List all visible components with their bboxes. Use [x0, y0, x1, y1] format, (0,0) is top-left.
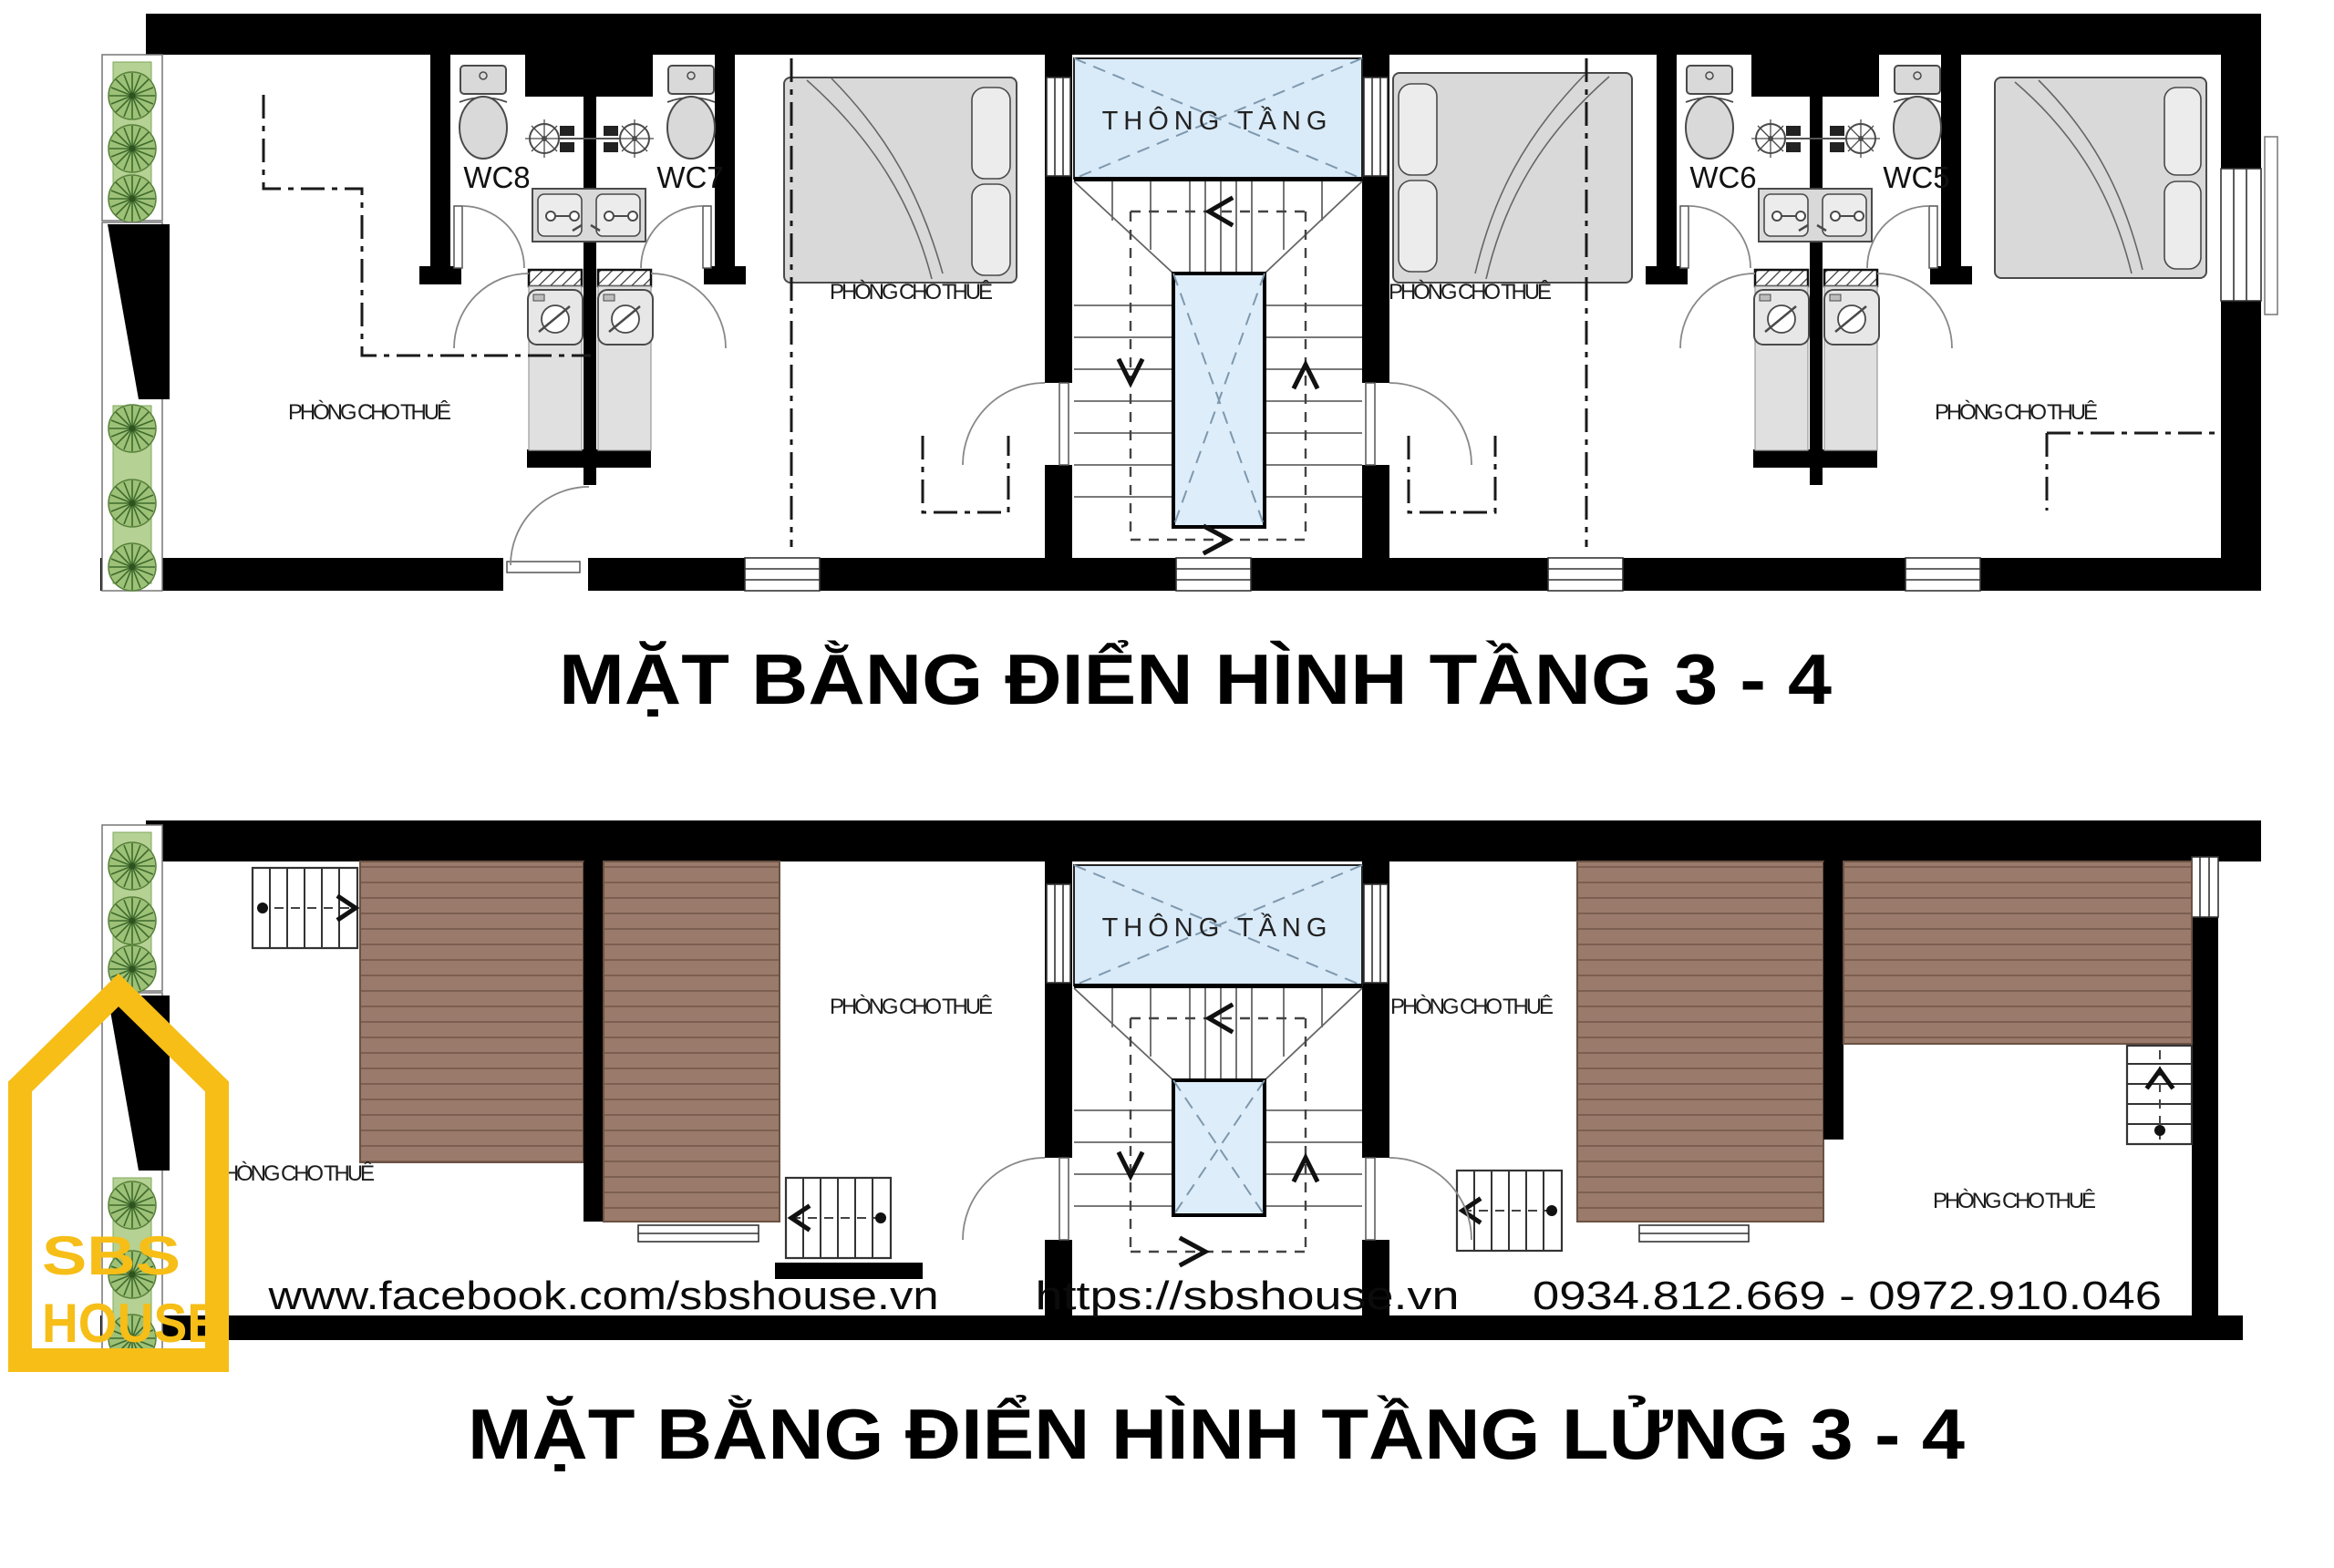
wc6-label: WC6 — [1689, 160, 1756, 194]
wood-deck — [604, 861, 780, 1222]
website-url: https://sbshouse.vn — [1036, 1274, 1460, 1318]
top-exterior-wall — [146, 820, 2261, 861]
wc8-label: WC8 — [463, 160, 530, 194]
right-wall-window — [2192, 857, 2218, 917]
plan1-title: MẶT BẰNG ĐIỂN HÌNH TẦNG 3 - 4 — [559, 639, 1832, 719]
top-exterior-wall — [146, 14, 2261, 55]
room-label: PHÒNG CHO THUÊ — [1933, 1189, 2097, 1213]
floor-plan-drawing: WC8 WC7 WC6 WC5 — [0, 0, 2334, 1568]
mezzanine-projection-line — [2047, 433, 2215, 511]
floor-plan-sheet: WC8 WC7 WC6 WC5 — [0, 0, 2334, 1568]
plan2-title: MẶT BẰNG ĐIỂN HÌNH TẦNG LỬNG 3 - 4 — [468, 1394, 1965, 1474]
bed-icon — [784, 77, 1017, 283]
plant-icon — [108, 405, 156, 452]
plant-icon — [108, 125, 156, 172]
bed-icon — [1393, 73, 1632, 283]
bed-icon — [1995, 77, 2206, 278]
balcony-rail — [2265, 137, 2277, 315]
stair-hall: THÔNG TẦNG — [963, 861, 1472, 1315]
room-label: PHÒNG CHO THUÊ — [1389, 280, 1553, 304]
phone-numbers: 0934.812.669 - 0972.910.046 — [1533, 1274, 2162, 1318]
plant-icon — [108, 72, 156, 119]
wood-deck — [1843, 861, 2192, 1044]
plant-icon — [108, 1181, 156, 1229]
wc7-label: WC7 — [656, 160, 723, 194]
wood-deck — [1577, 861, 1823, 1222]
plan-floor-3-4: WC8 WC7 WC6 WC5 — [100, 14, 2277, 591]
plant-icon — [108, 543, 156, 591]
plant-icon — [108, 842, 156, 890]
room-label: PHÒNG CHO THUÊ — [830, 995, 994, 1019]
logo-text-line2: HOUSE — [42, 1293, 221, 1354]
plant-icon — [108, 480, 156, 527]
right-wall-window — [2221, 169, 2261, 301]
logo-text-line1: SBS — [42, 1225, 181, 1286]
room-label: PHÒNG CHO THUÊ — [212, 1161, 376, 1186]
room-label: PHÒNG CHO THUÊ — [288, 400, 452, 425]
bottom-exterior-wall — [100, 1315, 2243, 1340]
loft-ladder — [1457, 1171, 1562, 1251]
loft-ladder — [2127, 1046, 2192, 1144]
plant-icon — [108, 897, 156, 944]
room1-entry-door — [503, 487, 604, 591]
wc5-label: WC5 — [1883, 160, 1949, 194]
facebook-url: www.facebook.com/sbshouse.vn — [267, 1274, 938, 1318]
room-label: PHÒNG CHO THUÊ — [830, 280, 994, 304]
left-planter-strip — [102, 825, 170, 1368]
room-label: PHÒNG CHO THUÊ — [1390, 995, 1554, 1019]
void-label: THÔNG TẦNG — [1102, 105, 1333, 136]
wc6-wc5-unit — [1646, 55, 1972, 485]
left-planter-strip — [102, 55, 170, 591]
loft-ladder — [253, 868, 357, 948]
right-exterior-wall — [2221, 14, 2261, 591]
void-label: THÔNG TẦNG — [1102, 912, 1333, 943]
room-label: PHÒNG CHO THUÊ — [1935, 400, 2099, 425]
loft-ladder — [786, 1178, 891, 1258]
plant-icon — [108, 175, 156, 222]
footer-contact-info: www.facebook.com/sbshouse.vn https://sbs… — [267, 1274, 2162, 1318]
wood-deck — [360, 861, 583, 1162]
wc8-wc7-unit — [419, 55, 746, 485]
